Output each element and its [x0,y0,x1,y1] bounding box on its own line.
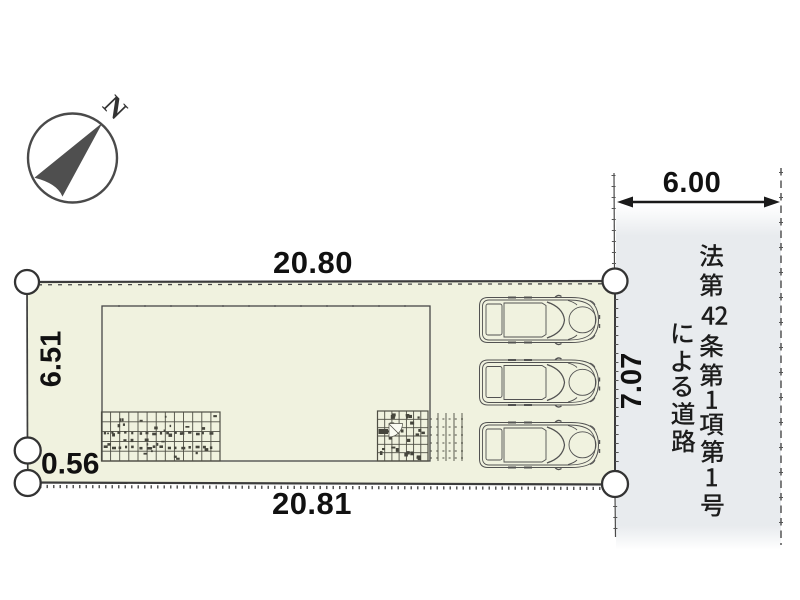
svg-text:7.07: 7.07 [616,353,648,409]
svg-text:6.51: 6.51 [35,331,67,387]
svg-text:6.00: 6.00 [663,167,721,199]
svg-text:20.80: 20.80 [273,245,353,280]
svg-text:20.81: 20.81 [272,486,352,521]
svg-text:0.56: 0.56 [41,448,99,481]
